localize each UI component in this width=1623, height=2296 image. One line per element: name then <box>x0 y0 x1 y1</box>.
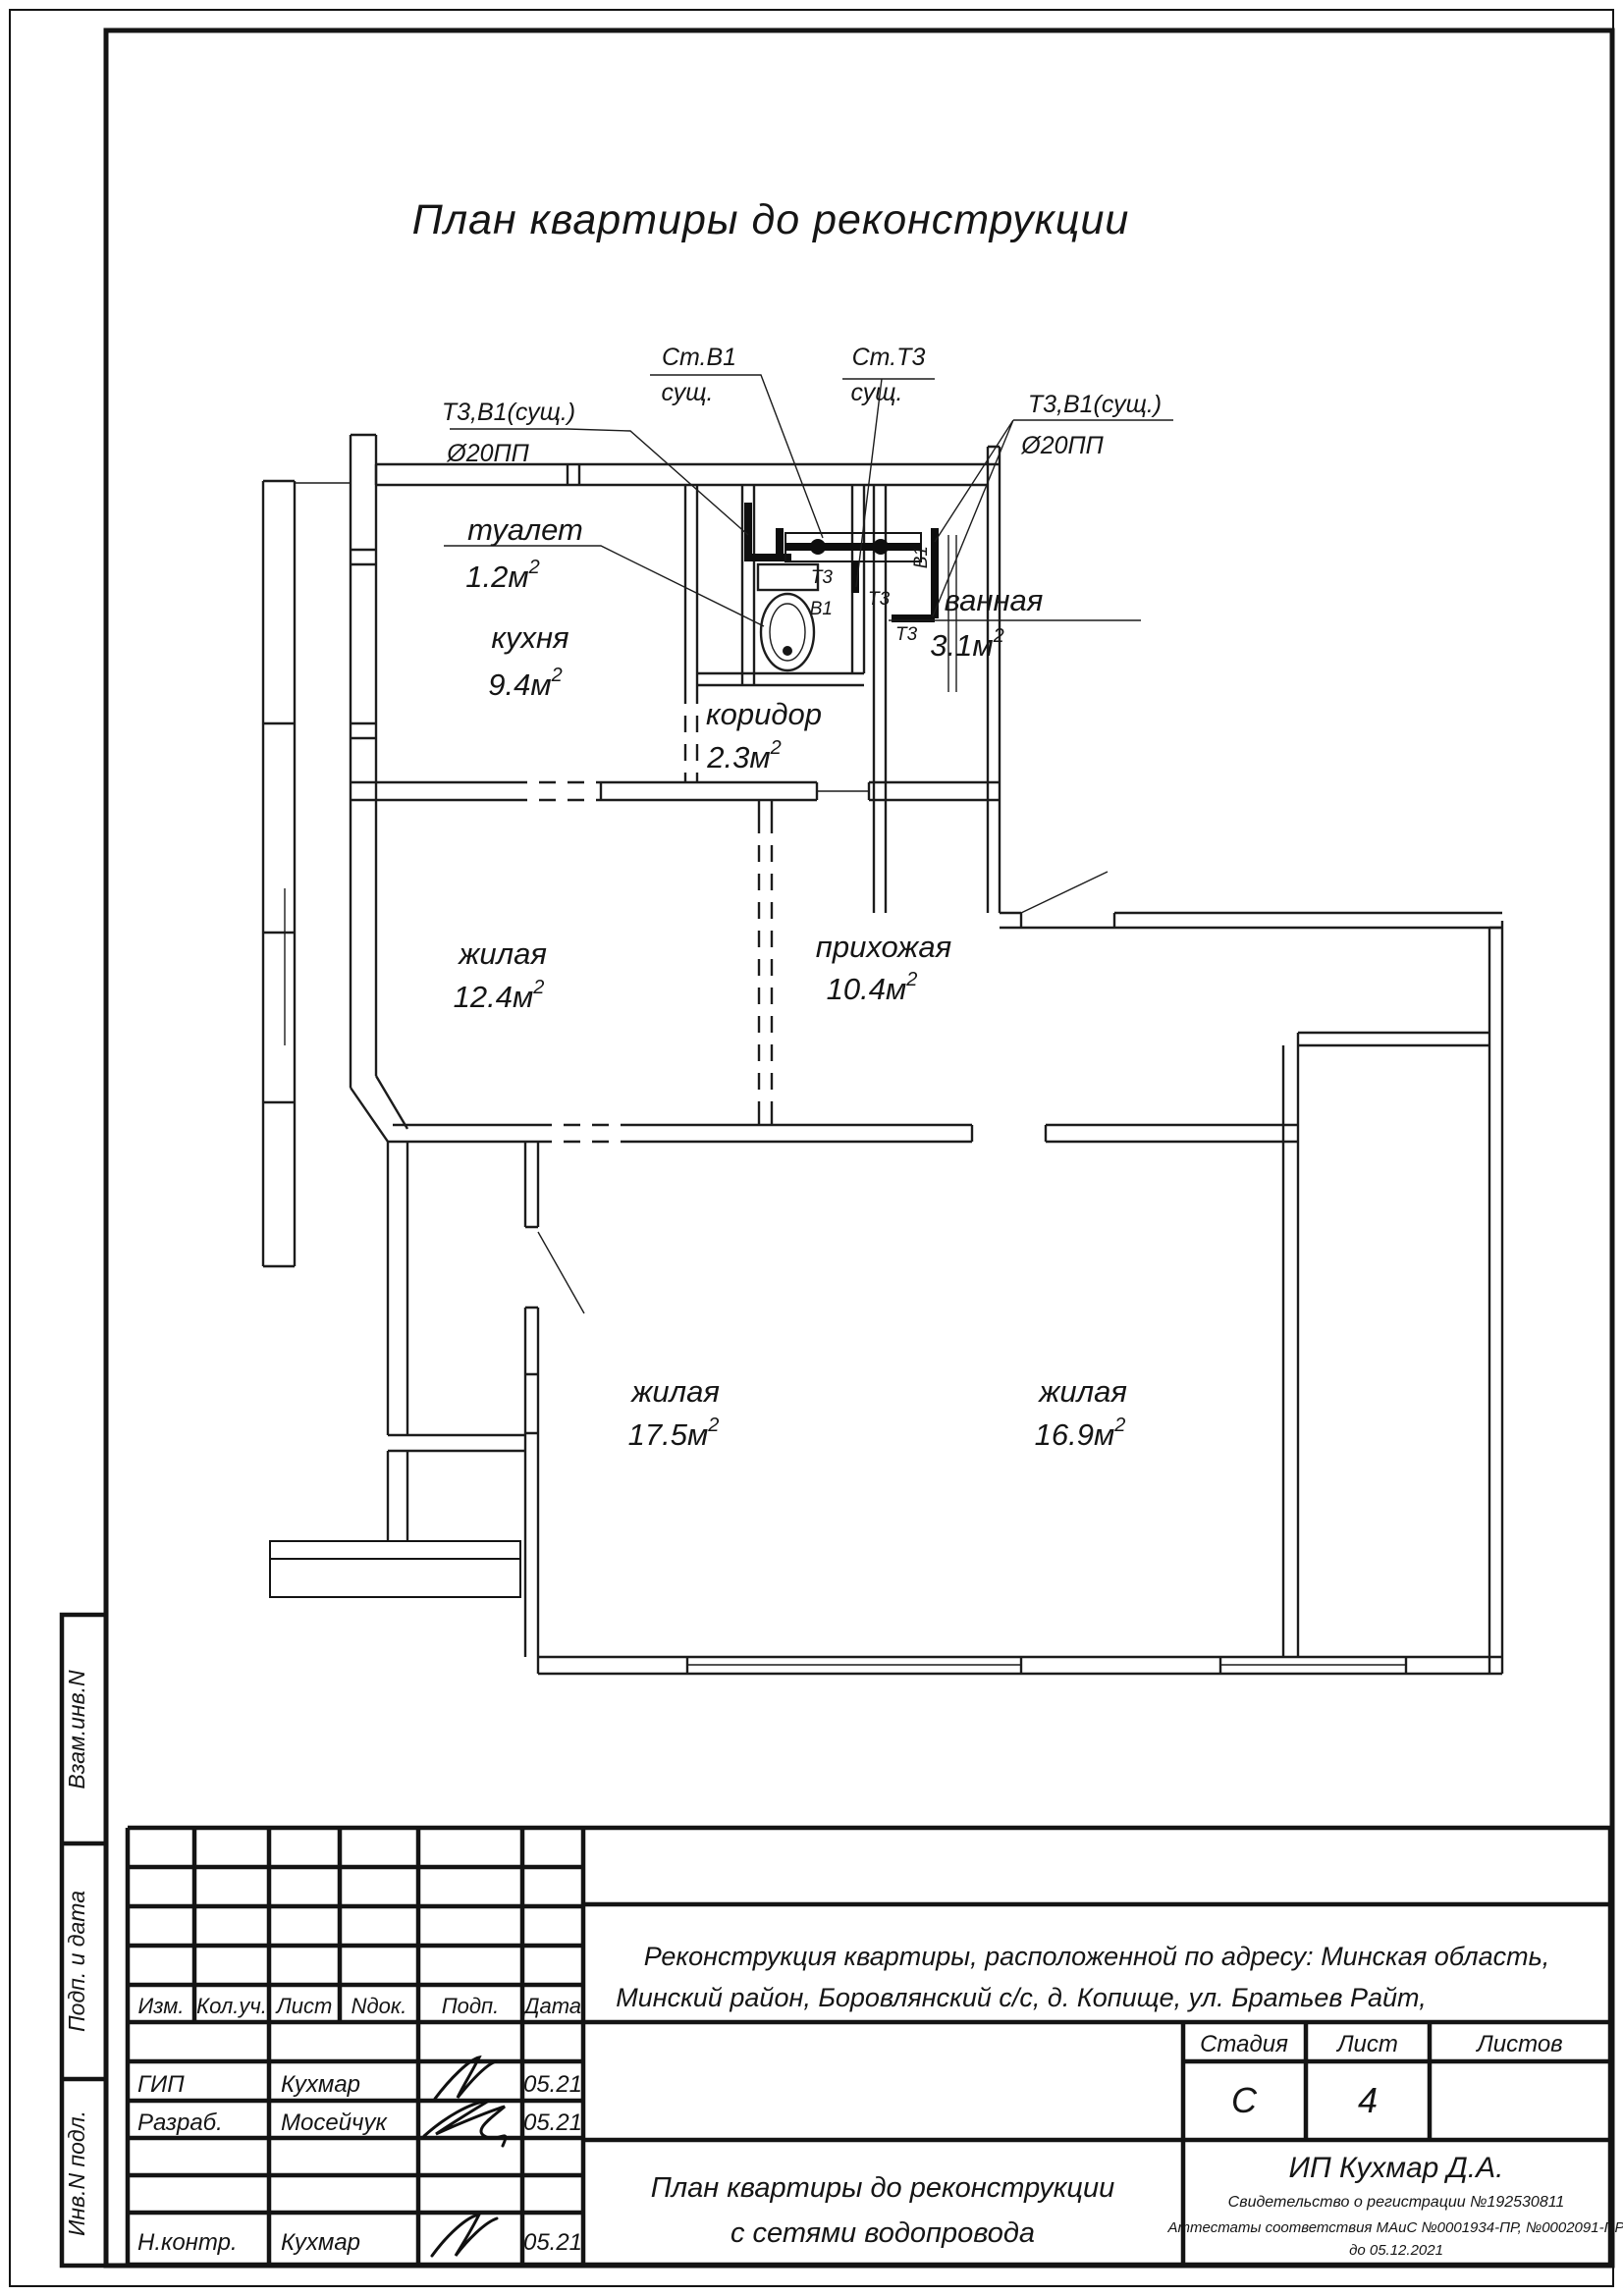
sheet-label: Лист <box>1335 2031 1398 2057</box>
annotation-st-v1: Ст.В1 <box>662 344 736 371</box>
svg-text:сущ.: сущ. <box>851 379 903 406</box>
row-gip-name: Кухмар <box>281 2071 360 2098</box>
signature-gip <box>435 2057 496 2099</box>
pipe-label-t3-branch: Т3 <box>895 624 918 645</box>
drawing-sheet: План квартиры до реконструкции <box>0 0 1623 2296</box>
project-address-line2: Минский район, Боровлянский с/с, д. Копи… <box>616 1983 1426 2012</box>
col-podp: Подп. <box>442 1994 500 2018</box>
room-living-16-area: 16.9м2 <box>1035 1415 1126 1452</box>
company-cert2: Аттестаты соответствия МАиС №0001934-ПР,… <box>1167 2219 1623 2236</box>
doc-title-line1: План квартиры до реконструкции <box>651 2172 1115 2204</box>
company-name: ИП Кухмар Д.А. <box>1289 2152 1504 2184</box>
room-living-12-area: 12.4м2 <box>454 977 545 1014</box>
room-toilet-area: 1.2м2 <box>465 557 539 594</box>
row-nkontr-name: Кухмар <box>281 2229 360 2256</box>
side-cell-inv: Инв.N подл. <box>64 2110 89 2236</box>
col-data: Дата <box>521 1994 581 2018</box>
stage-label: Стадия <box>1200 2031 1288 2057</box>
room-living-16: жилая <box>1037 1374 1127 1409</box>
svg-text:сущ.: сущ. <box>662 379 714 406</box>
valve-v1 <box>810 539 826 555</box>
signature-nkontr <box>432 2215 497 2256</box>
room-bath-area: 3.1м2 <box>930 625 1003 663</box>
company-cert1: Свидетельство о регистрации №192530811 <box>1228 2194 1565 2211</box>
pipe-label-t3: Т3 <box>811 567 834 588</box>
valve-t3 <box>873 539 889 555</box>
col-koluch: Кол.уч. <box>196 1994 267 2018</box>
svg-text:Ø20ПП: Ø20ПП <box>446 440 529 467</box>
row-razrab-role: Разраб. <box>137 2109 223 2136</box>
pipe-label-v1-riser: В1 <box>911 546 932 568</box>
col-list: Лист <box>275 1994 333 2018</box>
side-cell-podp: Подп. и дата <box>64 1891 89 2032</box>
room-living-17: жилая <box>629 1374 720 1409</box>
annotation-t3v1-left: Т3,В1(сущ.) <box>442 399 575 426</box>
room-living-17-area: 17.5м2 <box>628 1415 720 1452</box>
room-bath: ванная <box>945 583 1044 617</box>
walls <box>263 435 1502 1674</box>
balcony <box>270 1541 520 1597</box>
annotation-st-t3: Ст.Т3 <box>852 344 926 371</box>
row-nkontr-date: 05.21 <box>523 2229 582 2256</box>
stage-value: С <box>1231 2080 1258 2120</box>
room-corridor-area: 2.3м2 <box>706 737 781 774</box>
row-razrab-date: 05.21 <box>523 2109 582 2136</box>
floor-plan: Т3 В1 В1 Т3 Т3 Ст.В1 сущ. Ст.Т3 сущ. Т3,… <box>263 344 1502 1674</box>
col-ndok: Nдок. <box>352 1994 407 2018</box>
plan-annotations: Ст.В1 сущ. Ст.Т3 сущ. Т3,В1(сущ.) Ø20ПП … <box>442 344 1162 467</box>
page-title: План квартиры до реконструкции <box>412 196 1130 243</box>
sheets-label: Листов <box>1475 2031 1562 2057</box>
row-razrab-name: Мосейчук <box>281 2109 388 2136</box>
project-address-line1: Реконструкция квартиры, расположенной по… <box>644 1942 1550 1971</box>
doc-title-line2: с сетями водопровода <box>730 2217 1035 2249</box>
drawing-canvas: План квартиры до реконструкции <box>0 0 1623 2296</box>
pipe-right-t3v1 <box>892 528 935 618</box>
room-toilet: туалет <box>467 512 583 547</box>
room-corridor: коридор <box>706 697 822 731</box>
side-attribute-cells: Взам.инв.N Подп. и дата Инв.N подл. <box>62 1615 106 2266</box>
side-cell-vzam: Взам.инв.N <box>64 1670 89 1789</box>
row-gip-role: ГИП <box>137 2071 185 2098</box>
pipe-label-v1: В1 <box>810 599 833 619</box>
room-kitchen-area: 9.4м2 <box>488 665 562 702</box>
room-kitchen: кухня <box>491 620 568 655</box>
pipe-label-t3-drop: Т3 <box>868 589 891 610</box>
room-hall-area: 10.4м2 <box>827 969 918 1006</box>
row-nkontr-role: Н.контр. <box>137 2229 238 2256</box>
sheet-value: 4 <box>1358 2080 1378 2120</box>
titleblock-header-row: Изм. Кол.уч. Лист Nдок. Подп. Дата <box>138 1994 581 2018</box>
company-cert3: до 05.12.2021 <box>1349 2242 1443 2259</box>
row-gip-date: 05.21 <box>523 2071 582 2098</box>
col-izm: Изм. <box>138 1994 185 2018</box>
signatures <box>424 2057 506 2256</box>
svg-text:Ø20ПП: Ø20ПП <box>1020 432 1104 459</box>
title-block: Изм. Кол.уч. Лист Nдок. Подп. Дата ГИП К… <box>128 1828 1623 2265</box>
room-living-12: жилая <box>457 936 547 971</box>
room-hall: прихожая <box>816 930 951 964</box>
annotation-t3v1-right: Т3,В1(сущ.) <box>1028 391 1162 418</box>
